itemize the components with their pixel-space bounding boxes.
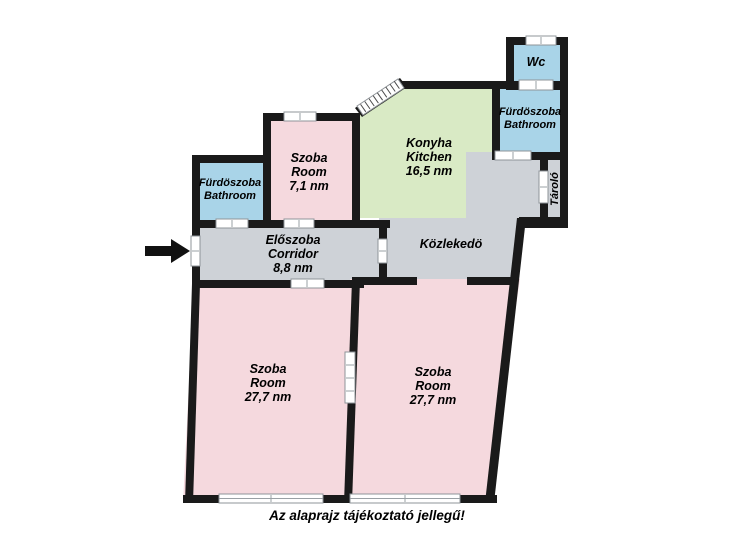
label-bathroom-right-hu: Fürdöszoba xyxy=(499,106,561,118)
door-corridor-hallway xyxy=(378,239,387,263)
label-hallway: Közlekedö xyxy=(420,237,483,251)
door-smallroom xyxy=(284,219,314,228)
door-entrance xyxy=(191,236,200,266)
wall-smallroom-left xyxy=(263,113,271,228)
label-bathroom-left-en: Bathroom xyxy=(204,190,256,202)
window-bathroom-left xyxy=(216,219,248,228)
label-roomright-en: Room xyxy=(415,379,450,393)
wall-outer-right xyxy=(560,37,568,228)
label-roomleft-area: 27,7 nm xyxy=(244,390,292,404)
label-wc: Wc xyxy=(527,55,546,69)
label-roomright-hu: Szoba xyxy=(415,365,452,379)
window-roomright-bottom xyxy=(350,494,460,503)
caption-note: Az alaprajz tájékoztató jellegű! xyxy=(268,508,465,523)
wall-roomright-top-right xyxy=(467,277,517,285)
label-kitchen-en: Kitchen xyxy=(406,150,452,164)
window-roomleft-bottom xyxy=(219,494,323,503)
label-kitchen-area: 16,5 nm xyxy=(406,164,453,178)
wall-bathroom-left-top xyxy=(192,155,271,163)
label-roomright-area: 27,7 nm xyxy=(409,393,457,407)
label-bathroom-right-en: Bathroom xyxy=(504,119,556,131)
wall-corridor-bottom xyxy=(192,280,364,288)
window-smallroom-top xyxy=(284,112,316,121)
label-storage: Tároló xyxy=(549,172,561,206)
window-bathroom-right xyxy=(495,151,531,160)
wall-kitchen-smallroom xyxy=(352,113,360,228)
floorplan-page: Wc Fürdöszoba Bathroom Tároló Konyha Kit… xyxy=(0,0,730,533)
label-roomleft-hu: Szoba xyxy=(250,362,287,376)
door-between-rooms xyxy=(345,352,355,403)
label-smallroom-en: Room xyxy=(291,165,326,179)
label-smallroom-area: 7,1 nm xyxy=(289,179,329,193)
door-storage xyxy=(539,171,548,203)
label-smallroom-hu: Szoba xyxy=(291,151,328,165)
wall-storage-bottom xyxy=(519,217,568,228)
wall-roomright-top-left xyxy=(352,277,417,285)
label-corridor-area: 8,8 nm xyxy=(273,261,313,275)
floorplan-drawing: Wc Fürdöszoba Bathroom Tároló Konyha Kit… xyxy=(0,0,730,533)
wall-kitchen-bathroom xyxy=(492,81,500,160)
label-bathroom-left-hu: Fürdöszoba xyxy=(199,177,261,189)
label-roomleft-en: Room xyxy=(250,376,285,390)
label-corridor-en: Corridor xyxy=(268,247,319,261)
label-corridor-hu: Előszoba xyxy=(266,233,321,247)
door-corridor-roomleft xyxy=(291,279,324,288)
label-kitchen-hu: Konyha xyxy=(406,136,452,150)
door-wc xyxy=(519,80,553,90)
wall-kitchen-top xyxy=(400,81,514,89)
window-wc-top xyxy=(526,36,556,45)
